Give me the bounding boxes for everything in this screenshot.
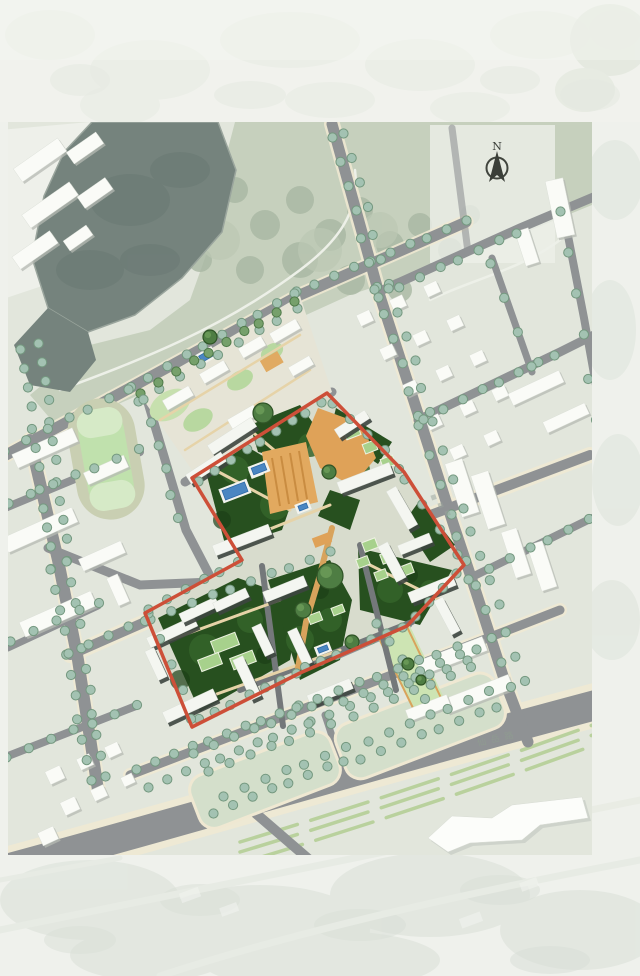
compass-n-label: N [492, 140, 502, 153]
masterplan-screenshot: 仙岳路 N [0, 0, 640, 976]
